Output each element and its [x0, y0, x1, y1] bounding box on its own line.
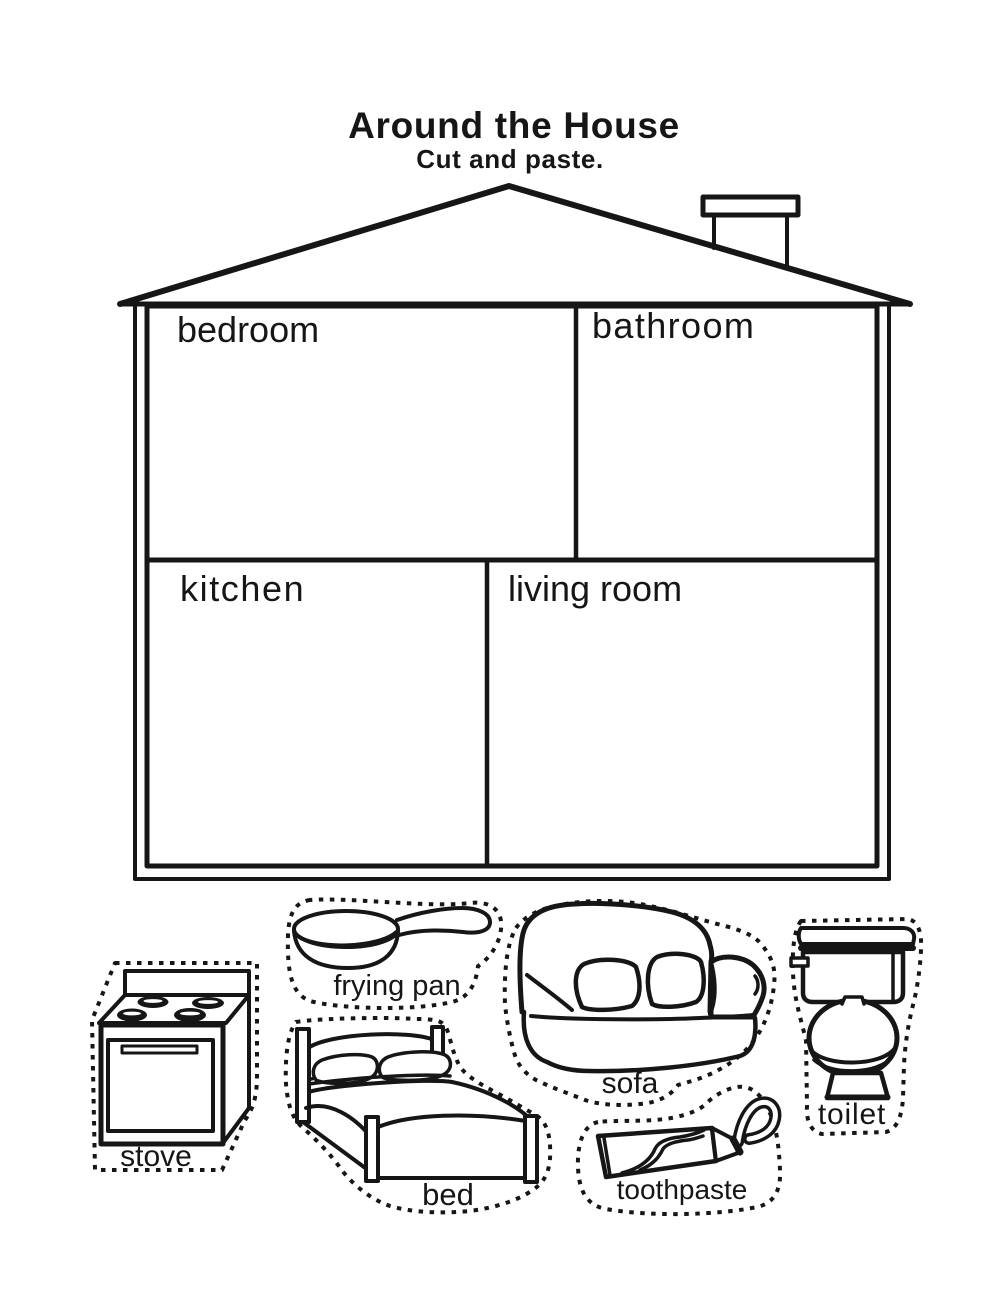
svg-text:toilet: toilet — [818, 1098, 886, 1131]
svg-text:bedroom: bedroom — [177, 309, 319, 350]
svg-text:bathroom: bathroom — [592, 305, 755, 346]
svg-text:sofa: sofa — [602, 1067, 659, 1100]
svg-text:kitchen: kitchen — [180, 568, 305, 609]
svg-text:living room: living room — [508, 568, 682, 609]
svg-text:bed: bed — [422, 1177, 474, 1212]
svg-text:Cut and paste.: Cut and paste. — [416, 144, 604, 174]
svg-text:frying pan: frying pan — [333, 970, 460, 1002]
svg-text:Around the House: Around the House — [348, 105, 680, 146]
svg-text:toothpaste: toothpaste — [617, 1174, 748, 1205]
svg-text:stove: stove — [120, 1140, 192, 1173]
